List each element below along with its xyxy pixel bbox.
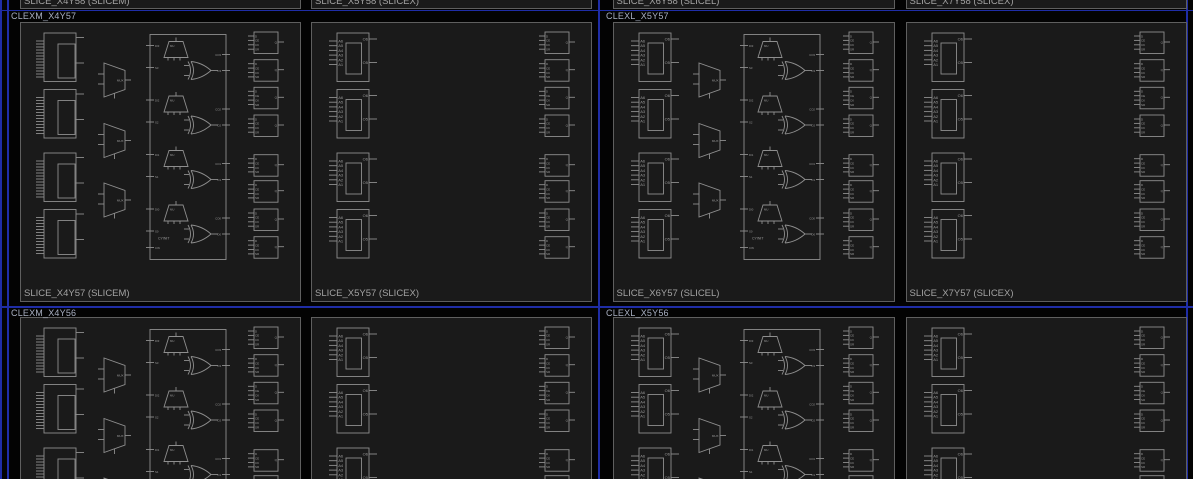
muxf-icon[interactable]: MUX (98, 183, 131, 219)
svg-text:Q: Q (275, 96, 278, 100)
svg-text:SR: SR (255, 370, 260, 374)
muxf-icon[interactable]: MUX (693, 358, 726, 394)
flipflop-icon[interactable]: DCECKSRQ (539, 237, 575, 259)
muxf-icon[interactable]: MUX (693, 419, 726, 455)
xorcy-icon[interactable] (184, 466, 218, 479)
svg-text:O5: O5 (957, 117, 963, 122)
svg-text:CK: CK (1141, 126, 1145, 130)
flipflop-icon[interactable]: DCECKSRQ (843, 355, 879, 377)
slice-box-slicex-x7y56[interactable]: A6A5A4A3A2A1O6O5A6A5A4A3A2A1O6O5A6A5A4A3… (906, 317, 1187, 479)
lut6-icon[interactable]: A6A5A4A3A2A1O6O5 (631, 153, 679, 202)
svg-text:CO0: CO0 (809, 216, 815, 220)
lutm-ram-icon[interactable] (36, 153, 84, 202)
svg-text:CK: CK (255, 126, 259, 130)
svg-text:DI3: DI3 (749, 44, 754, 48)
xorcy-icon[interactable] (184, 62, 218, 80)
svg-text:Q: Q (566, 458, 569, 462)
flipflop-icon[interactable]: DCECKSRQ (843, 32, 879, 54)
svg-text:Q: Q (1160, 40, 1163, 44)
flipflop-icon[interactable]: DCECKSRQ (843, 382, 879, 404)
slice-box-slicex-x7y57[interactable]: A6A5A4A3A2A1O6O5A6A5A4A3A2A1O6O5A6A5A4A3… (906, 22, 1187, 302)
svg-text:S0: S0 (155, 229, 159, 233)
lutm-ram-icon[interactable] (36, 385, 84, 434)
muxf-icon[interactable]: MUX (98, 358, 131, 394)
svg-text:DI1: DI1 (155, 153, 160, 157)
flipflop-icon[interactable]: DCECKSRQ (1134, 382, 1170, 404)
slice-box-slicex-x5y56[interactable]: A6A5A4A3A2A1O6O5A6A5A4A3A2A1O6O5A6A5A4A3… (311, 317, 592, 479)
svg-text:CE: CE (546, 187, 550, 191)
flipflop-icon[interactable]: DCECKSRQ (1134, 355, 1170, 377)
svg-text:MUX: MUX (711, 139, 718, 143)
svg-text:CK: CK (255, 71, 259, 75)
svg-text:SR: SR (255, 398, 260, 402)
svg-text:O0: O0 (811, 232, 815, 236)
svg-text:CK: CK (546, 43, 550, 47)
svg-text:DI0: DI0 (749, 207, 754, 211)
tile-label-clexm-x4y56: CLEXM_X4Y56 (11, 308, 76, 318)
xorcy-icon[interactable] (778, 357, 812, 375)
lut6-icon[interactable]: A6A5A4A3A2A1O6O5 (631, 448, 679, 479)
svg-text:SR: SR (850, 465, 855, 469)
svg-text:SR: SR (546, 225, 551, 229)
svg-text:DI0: DI0 (155, 207, 160, 211)
svg-text:CK: CK (255, 192, 259, 196)
svg-text:D: D (255, 239, 258, 243)
svg-text:D: D (850, 452, 853, 456)
lut6-icon[interactable]: A6A5A4A3A2A1O6O5 (924, 210, 972, 259)
svg-text:S1: S1 (749, 470, 753, 474)
svg-text:O5: O5 (363, 180, 369, 185)
svg-text:D: D (255, 117, 258, 121)
xorcy-icon[interactable] (184, 171, 218, 189)
lut6-icon[interactable]: A6A5A4A3A2A1O6O5 (924, 385, 972, 434)
svg-text:CK: CK (850, 98, 854, 102)
flipflop-icon[interactable]: DCECKSRQ (248, 382, 284, 404)
svg-text:CK: CK (1141, 166, 1145, 170)
flipflop-icon[interactable]: DCECKSRQ (248, 181, 284, 203)
svg-text:D: D (255, 34, 258, 38)
svg-text:A1: A1 (640, 119, 646, 124)
svg-text:CE: CE (850, 456, 854, 460)
svg-text:S1: S1 (749, 175, 753, 179)
flipflop-icon[interactable]: DCECKSRQ (1134, 450, 1170, 472)
lut6-icon[interactable]: A6A5A4A3A2A1O6O5 (329, 328, 377, 377)
xorcy-icon[interactable] (778, 466, 812, 479)
svg-text:CE: CE (850, 122, 854, 126)
tile-label-clexm-x4y57: CLEXM_X4Y57 (11, 11, 76, 21)
flipflop-icon[interactable]: DCECKSRQ (1134, 327, 1170, 349)
svg-text:CE: CE (546, 456, 550, 460)
svg-text:D: D (546, 452, 549, 456)
svg-text:O3: O3 (217, 69, 221, 73)
flipflop-icon[interactable]: DCECKSRQ (248, 155, 284, 177)
svg-text:Q: Q (275, 391, 278, 395)
flipflop-icon[interactable]: DCECKSRQ (539, 181, 575, 203)
svg-text:CK: CK (850, 421, 854, 425)
svg-text:Q: Q (1160, 163, 1163, 167)
slice-schematic: MUXMUXMUXMUDI3S3CO3O3MUDI2S2CO2O2MUDI1S1… (21, 23, 301, 301)
slice-label: SLICE_X6Y58 (SLICEL) (617, 0, 720, 7)
svg-text:Q: Q (869, 123, 872, 127)
slice-box-slicel-x6y56[interactable]: A6A5A4A3A2A1O6O5A6A5A4A3A2A1O6O5A6A5A4A3… (613, 317, 895, 479)
flipflop-icon[interactable]: DCECKSRQ (248, 327, 284, 349)
svg-text:O5: O5 (664, 355, 670, 360)
flipflop-icon[interactable]: DCECKSRQ (843, 327, 879, 349)
svg-text:CE: CE (850, 66, 854, 70)
flipflop-icon[interactable]: DCECKSRQ (248, 410, 284, 432)
svg-text:DI2: DI2 (155, 98, 160, 102)
slice-box-slicem-x4y56[interactable]: MUXMUXMUXMUDI3S3CO3O3MUDI2S2CO2O2MUDI1S1… (20, 317, 301, 479)
svg-text:DI2: DI2 (749, 393, 754, 397)
svg-text:CO1: CO1 (215, 457, 221, 461)
svg-text:A1: A1 (338, 414, 344, 419)
xorcy-icon[interactable] (778, 171, 812, 189)
lut6-icon[interactable]: A6A5A4A3A2A1O6O5 (924, 90, 972, 139)
svg-text:D: D (255, 62, 258, 66)
svg-text:Q: Q (869, 217, 872, 221)
svg-text:Q: Q (1160, 68, 1163, 72)
carry4-icon[interactable]: MUDI3S3CO3O3MUDI2S2CO2O2MUDI1S1CO1O1MUDI… (740, 35, 824, 260)
flipflop-icon[interactable]: DCECKSRQ (843, 209, 879, 231)
flipflop-icon[interactable]: DCECKSRQ (1134, 410, 1170, 432)
svg-text:MU: MU (764, 44, 768, 48)
svg-text:O5: O5 (363, 60, 369, 65)
svg-text:Q: Q (1160, 335, 1163, 339)
svg-text:MUX: MUX (711, 198, 718, 202)
svg-text:D: D (1141, 157, 1144, 161)
flipflop-icon[interactable]: DCECKSRQ (539, 355, 575, 377)
xorcy-icon[interactable] (184, 116, 218, 134)
flipflop-icon[interactable]: DCECKSRQ (843, 60, 879, 81)
svg-text:Q: Q (275, 40, 278, 44)
svg-text:CK: CK (1141, 338, 1145, 342)
svg-text:CK: CK (850, 393, 854, 397)
svg-text:O5: O5 (363, 117, 369, 122)
svg-text:MU: MU (170, 339, 174, 343)
flipflop-icon[interactable]: DCECKSRQ (539, 410, 575, 432)
svg-text:Q: Q (566, 163, 569, 167)
svg-text:O5: O5 (363, 412, 369, 417)
svg-text:CO1: CO1 (809, 457, 815, 461)
slice-schematic: A6A5A4A3A2A1O6O5A6A5A4A3A2A1O6O5A6A5A4A3… (907, 318, 1187, 479)
svg-text:O6: O6 (664, 157, 670, 162)
flipflop-icon[interactable]: DCECKSRQ (539, 60, 575, 81)
svg-text:CE: CE (1141, 39, 1145, 43)
lut6-icon[interactable]: A6A5A4A3A2A1O6O5 (924, 33, 972, 82)
slice-box-slicex-x5y57[interactable]: A6A5A4A3A2A1O6O5A6A5A4A3A2A1O6O5A6A5A4A3… (311, 22, 592, 302)
svg-text:A1: A1 (338, 119, 344, 124)
flipflop-icon[interactable]: DCECKSRQ (1134, 237, 1170, 259)
muxf-icon[interactable]: MUX (98, 124, 131, 160)
svg-text:MUX: MUX (711, 434, 718, 438)
xorcy-icon[interactable] (778, 411, 812, 429)
muxf-icon[interactable]: MUX (98, 63, 131, 99)
svg-text:CK: CK (546, 248, 550, 252)
svg-text:SR: SR (1141, 131, 1146, 135)
flipflop-icon[interactable]: DCECKSRQ (539, 327, 575, 349)
svg-text:CK: CK (255, 421, 259, 425)
svg-text:Q: Q (275, 68, 278, 72)
svg-text:D: D (255, 329, 258, 333)
flipflop-icon[interactable]: DCECKSRQ (843, 237, 879, 259)
svg-text:CO3: CO3 (215, 348, 221, 352)
svg-text:CE: CE (850, 417, 854, 421)
svg-text:CK: CK (255, 43, 259, 47)
lut6-icon[interactable]: A6A5A4A3A2A1O6O5 (924, 328, 972, 377)
svg-text:D: D (546, 34, 549, 38)
svg-text:CK: CK (1141, 366, 1145, 370)
flipflop-icon[interactable]: DCECKSRQ (539, 382, 575, 404)
flipflop-icon[interactable]: DCECKSRQ (539, 155, 575, 177)
svg-text:D: D (546, 62, 549, 66)
svg-text:D: D (850, 239, 853, 243)
svg-text:O1: O1 (217, 473, 221, 477)
svg-text:Q: Q (275, 163, 278, 167)
svg-text:D: D (1141, 90, 1144, 94)
svg-text:CE: CE (1141, 456, 1145, 460)
svg-text:SR: SR (546, 343, 551, 347)
svg-text:Q: Q (1160, 123, 1163, 127)
svg-text:O2: O2 (217, 418, 221, 422)
svg-text:S3: S3 (155, 361, 159, 365)
svg-text:MU: MU (764, 339, 768, 343)
xorcy-icon[interactable] (184, 411, 218, 429)
slice-label: SLICE_X6Y57 (SLICEL) (617, 288, 720, 299)
slice-schematic: A6A5A4A3A2A1O6O5A6A5A4A3A2A1O6O5A6A5A4A3… (614, 23, 895, 301)
muxf-icon[interactable]: MUX (693, 183, 726, 219)
lut6-icon[interactable]: A6A5A4A3A2A1O6O5 (631, 90, 679, 139)
carry4-icon[interactable]: MUDI3S3CO3O3MUDI2S2CO2O2MUDI1S1CO1O1MUDI… (740, 330, 824, 479)
svg-text:CE: CE (255, 417, 259, 421)
carry4-icon[interactable]: MUDI3S3CO3O3MUDI2S2CO2O2MUDI1S1CO1O1MUDI… (146, 330, 230, 479)
lut6-icon[interactable]: A6A5A4A3A2A1O6O5 (924, 153, 972, 202)
lut6-icon[interactable]: A6A5A4A3A2A1O6O5 (329, 385, 377, 434)
svg-text:Q: Q (869, 68, 872, 72)
flipflop-icon[interactable]: DCECKSRQ (1134, 209, 1170, 231)
flipflop-icon[interactable]: DCECKSRQ (539, 450, 575, 472)
flipflop-icon[interactable]: DCECKSRQ (539, 87, 575, 109)
svg-text:MUX: MUX (117, 198, 124, 202)
flipflop-icon[interactable]: DCECKSRQ (843, 450, 879, 472)
xorcy-icon[interactable] (778, 225, 812, 243)
slice-label: SLICE_X7Y57 (SLICEX) (910, 288, 1014, 299)
lutm-ram-icon[interactable] (36, 210, 84, 259)
muxf-icon[interactable]: MUX (693, 63, 726, 99)
flipflop-icon[interactable]: DCECKSRQ (1134, 60, 1170, 81)
svg-text:DI1: DI1 (155, 448, 160, 452)
flipflop-icon[interactable]: DCECKSRQ (539, 32, 575, 54)
flipflop-icon[interactable]: DCECKSRQ (843, 155, 879, 177)
lutm-ram-icon[interactable] (36, 448, 84, 479)
flipflop-icon[interactable]: DCECKSRQ (248, 32, 284, 54)
flipflop-icon[interactable]: DCECKSRQ (1134, 155, 1170, 177)
flipflop-icon[interactable]: DCECKSRQ (1134, 115, 1170, 137)
svg-text:CK: CK (1141, 393, 1145, 397)
lut6-icon[interactable]: A6A5A4A3A2A1O6O5 (329, 90, 377, 139)
muxf-icon[interactable]: MUX (98, 419, 131, 455)
svg-text:CIN: CIN (155, 246, 160, 250)
svg-text:CK: CK (255, 98, 259, 102)
flipflop-icon[interactable]: DCECKSRQ (843, 181, 879, 203)
svg-text:A1: A1 (338, 239, 344, 244)
lut6-icon[interactable]: A6A5A4A3A2A1O6O5 (329, 210, 377, 259)
svg-text:CK: CK (1141, 71, 1145, 75)
svg-text:O6: O6 (664, 213, 670, 218)
svg-text:CK: CK (255, 393, 259, 397)
slice-box-partial[interactable]: SLICE_X4Y58 (SLICEM) (20, 0, 301, 9)
lut6-icon[interactable]: A6A5A4A3A2A1O6O5 (631, 210, 679, 259)
svg-text:D: D (850, 211, 853, 215)
svg-text:Q: Q (1160, 363, 1163, 367)
slice-label: SLICE_X7Y58 (SLICEX) (910, 0, 1014, 7)
lut6-icon[interactable]: A6A5A4A3A2A1O6O5 (631, 385, 679, 434)
svg-text:SR: SR (1141, 426, 1146, 430)
svg-text:Q: Q (275, 458, 278, 462)
svg-text:CK: CK (255, 248, 259, 252)
slice-box-partial[interactable]: SLICE_X5Y58 (SLICEX) (311, 0, 592, 9)
svg-text:D: D (850, 62, 853, 66)
svg-text:A1: A1 (640, 182, 646, 187)
flipflop-icon[interactable]: DCECKSRQ (248, 237, 284, 259)
lut6-icon[interactable]: A6A5A4A3A2A1O6O5 (631, 328, 679, 377)
svg-text:D: D (546, 239, 549, 243)
flipflop-icon[interactable]: DCECKSRQ (539, 209, 575, 231)
svg-text:O5: O5 (664, 475, 670, 479)
svg-text:A1: A1 (933, 182, 939, 187)
svg-text:O6: O6 (363, 93, 369, 98)
svg-text:CE: CE (546, 216, 550, 220)
svg-text:CE: CE (1141, 361, 1145, 365)
svg-text:O2: O2 (217, 123, 221, 127)
svg-text:MUX: MUX (117, 78, 124, 82)
svg-text:O5: O5 (664, 60, 670, 65)
slice-box-slicel-x6y57[interactable]: A6A5A4A3A2A1O6O5A6A5A4A3A2A1O6O5A6A5A4A3… (613, 22, 895, 302)
flipflop-icon[interactable]: DCECKSRQ (843, 115, 879, 137)
svg-text:S1: S1 (155, 470, 159, 474)
svg-text:CK: CK (546, 71, 550, 75)
flipflop-icon[interactable]: DCECKSRQ (843, 87, 879, 109)
flipflop-icon[interactable]: DCECKSRQ (843, 410, 879, 432)
svg-text:O5: O5 (664, 117, 670, 122)
svg-text:CE: CE (255, 161, 259, 165)
svg-text:O6: O6 (664, 37, 670, 42)
svg-text:O2: O2 (811, 418, 815, 422)
slice-schematic: A6A5A4A3A2A1O6O5A6A5A4A3A2A1O6O5A6A5A4A3… (312, 318, 592, 479)
xorcy-icon[interactable] (184, 357, 218, 375)
flipflop-icon[interactable]: DCECKSRQ (539, 115, 575, 137)
lut6-icon[interactable]: A6A5A4A3A2A1O6O5 (631, 33, 679, 82)
flipflop-icon[interactable]: DCECKSRQ (248, 115, 284, 137)
svg-text:O5: O5 (957, 355, 963, 360)
svg-text:CK: CK (850, 71, 854, 75)
svg-text:O1: O1 (811, 473, 815, 477)
svg-text:D: D (546, 412, 549, 416)
slice-box-partial[interactable]: SLICE_X6Y58 (SLICEL) (613, 0, 895, 9)
svg-text:SR: SR (850, 131, 855, 135)
svg-text:O6: O6 (664, 332, 670, 337)
svg-text:D: D (850, 117, 853, 121)
svg-text:SR: SR (850, 48, 855, 52)
svg-text:Q: Q (566, 363, 569, 367)
flipflop-icon[interactable]: DCECKSRQ (1134, 181, 1170, 203)
xorcy-icon[interactable] (778, 116, 812, 134)
svg-text:D: D (850, 183, 853, 187)
svg-text:A1: A1 (338, 62, 344, 67)
svg-text:MUX: MUX (711, 373, 718, 377)
lutm-ram-icon[interactable] (36, 90, 84, 139)
svg-text:Q: Q (1160, 189, 1163, 193)
svg-text:O6: O6 (664, 452, 670, 457)
lut6-icon[interactable]: A6A5A4A3A2A1O6O5 (329, 153, 377, 202)
svg-text:D: D (546, 357, 549, 361)
svg-text:DI2: DI2 (155, 393, 160, 397)
svg-text:CE: CE (1141, 94, 1145, 98)
svg-text:CE: CE (255, 389, 259, 393)
svg-text:A1: A1 (933, 62, 939, 67)
svg-text:CE: CE (255, 94, 259, 98)
svg-text:O3: O3 (811, 69, 815, 73)
svg-text:SR: SR (255, 196, 260, 200)
svg-text:CE: CE (1141, 334, 1145, 338)
svg-text:S3: S3 (749, 66, 753, 70)
svg-text:A1: A1 (640, 357, 646, 362)
xorcy-icon[interactable] (778, 62, 812, 80)
svg-text:CK: CK (850, 338, 854, 342)
lutm-ram-icon[interactable] (36, 33, 84, 82)
flipflop-icon[interactable]: DCECKSRQ (248, 87, 284, 109)
slice-box-slicem-x4y57[interactable]: MUXMUXMUXMUDI3S3CO3O3MUDI2S2CO2O2MUDI1S1… (20, 22, 301, 302)
svg-text:O6: O6 (957, 332, 963, 337)
svg-text:CK: CK (850, 126, 854, 130)
lut6-icon[interactable]: A6A5A4A3A2A1O6O5 (924, 448, 972, 479)
flipflop-icon[interactable]: DCECKSRQ (248, 209, 284, 231)
svg-text:D: D (1141, 62, 1144, 66)
svg-text:CE: CE (850, 361, 854, 365)
svg-text:D: D (1141, 452, 1144, 456)
lutm-ram-icon[interactable] (36, 328, 84, 377)
svg-text:Q: Q (1160, 96, 1163, 100)
svg-text:CE: CE (1141, 161, 1145, 165)
svg-text:CK: CK (546, 98, 550, 102)
svg-text:SR: SR (255, 252, 260, 256)
svg-text:SR: SR (850, 252, 855, 256)
muxf-icon[interactable]: MUX (693, 124, 726, 160)
flipflop-icon[interactable]: DCECKSRQ (248, 60, 284, 81)
svg-text:D: D (255, 211, 258, 215)
svg-text:CE: CE (850, 94, 854, 98)
flipflop-icon[interactable]: DCECKSRQ (1134, 32, 1170, 54)
flipflop-icon[interactable]: DCECKSRQ (1134, 87, 1170, 109)
svg-text:CE: CE (255, 66, 259, 70)
slice-schematic: A6A5A4A3A2A1O6O5A6A5A4A3A2A1O6O5A6A5A4A3… (907, 23, 1187, 301)
svg-text:CO1: CO1 (215, 162, 221, 166)
flipflop-icon[interactable]: DCECKSRQ (248, 355, 284, 377)
svg-text:D: D (546, 157, 549, 161)
svg-text:D: D (546, 117, 549, 121)
lut6-icon[interactable]: A6A5A4A3A2A1O6O5 (329, 448, 377, 479)
svg-text:SR: SR (546, 196, 551, 200)
carry4-icon[interactable]: MUDI3S3CO3O3MUDI2S2CO2O2MUDI1S1CO1O1MUDI… (146, 35, 230, 260)
svg-text:Q: Q (869, 391, 872, 395)
xorcy-icon[interactable] (184, 225, 218, 243)
slice-box-partial[interactable]: SLICE_X7Y58 (SLICEX) (906, 0, 1187, 9)
svg-text:Q: Q (1160, 217, 1163, 221)
flipflop-icon[interactable]: DCECKSRQ (248, 450, 284, 472)
slice-schematic: MUXMUXMUXMUDI3S3CO3O3MUDI2S2CO2O2MUDI1S1… (21, 318, 301, 479)
svg-text:MUX: MUX (117, 373, 124, 377)
svg-text:DI1: DI1 (749, 153, 754, 157)
lut6-icon[interactable]: A6A5A4A3A2A1O6O5 (329, 33, 377, 82)
